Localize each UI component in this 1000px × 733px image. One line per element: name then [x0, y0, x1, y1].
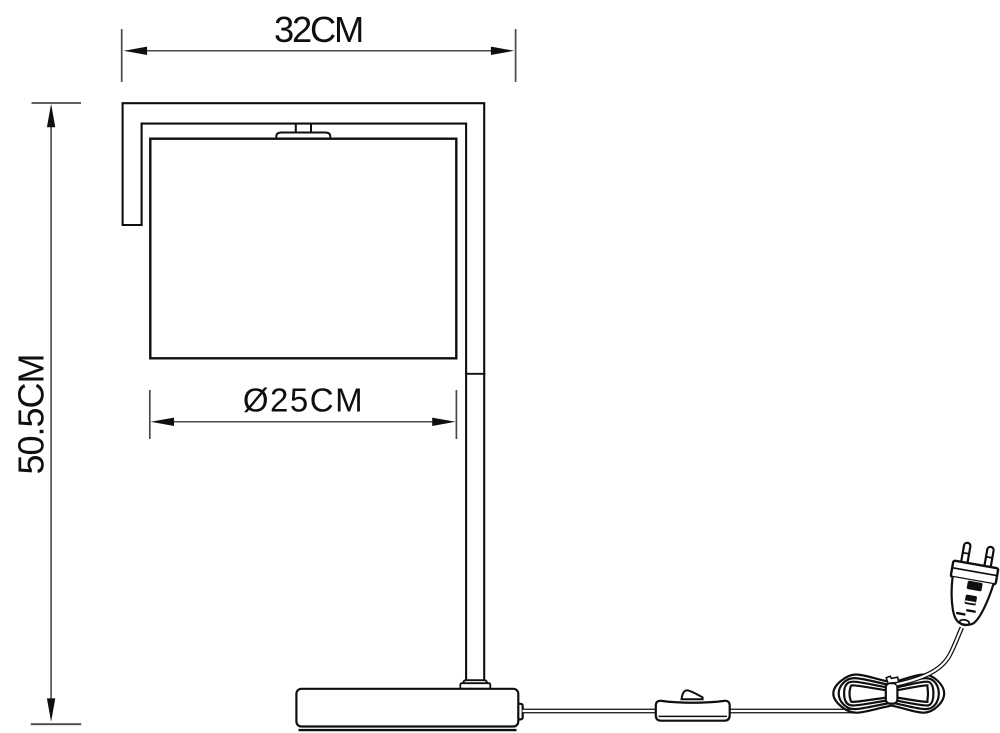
svg-text:32CM: 32CM: [274, 9, 362, 50]
svg-text:50.5CM: 50.5CM: [11, 354, 52, 474]
svg-text:Ø25CM: Ø25CM: [243, 381, 364, 418]
